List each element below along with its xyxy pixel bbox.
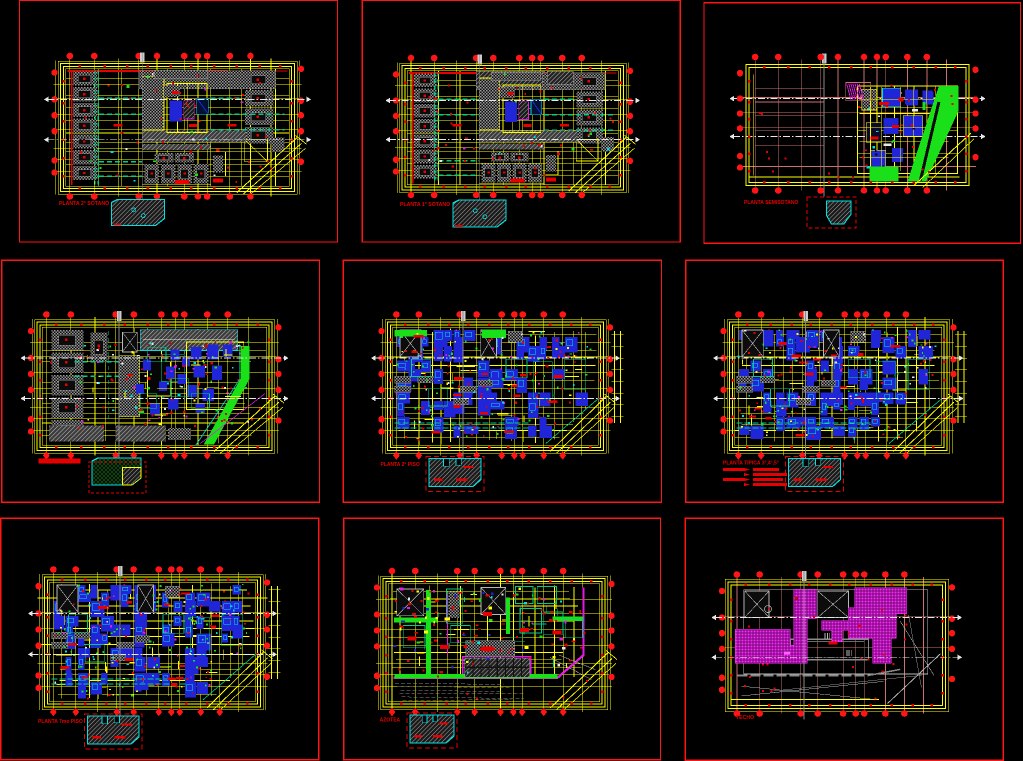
svg-text:PLANTA TIPICA 3°,4°,5°: PLANTA TIPICA 3°,4°,5° — [723, 461, 779, 467]
svg-text:PLANTA 2° SOTANO: PLANTA 2° SOTANO — [59, 201, 109, 207]
svg-text:PLANTA 7mo PISO: PLANTA 7mo PISO — [38, 719, 83, 725]
svg-text:TECHO: TECHO — [736, 715, 754, 721]
svg-text:AZOTEA: AZOTEA — [380, 718, 401, 724]
svg-text:PLANTA 2° PISO: PLANTA 2° PISO — [381, 462, 420, 468]
svg-text:PLANTA 1° SOTANO: PLANTA 1° SOTANO — [400, 202, 450, 208]
svg-text:PLANTA SEMISOTANO: PLANTA SEMISOTANO — [744, 200, 798, 206]
